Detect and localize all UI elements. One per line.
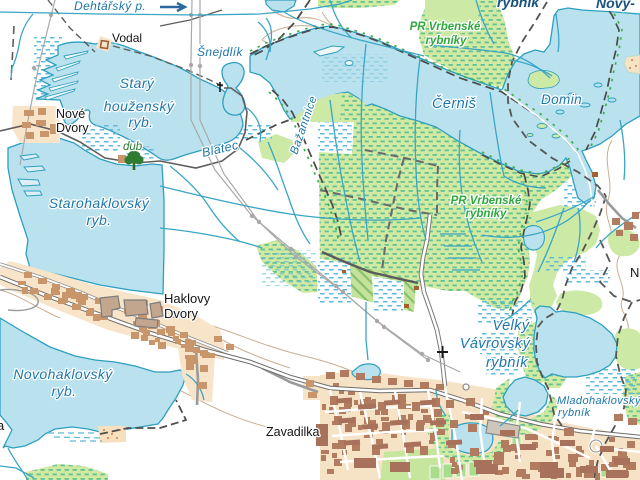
svg-text:rybník: rybník — [558, 407, 590, 419]
svg-text:dub: dub — [123, 141, 143, 153]
svg-text:Starý: Starý — [120, 75, 155, 91]
svg-text:Dehtářský p.: Dehtářský p. — [74, 0, 146, 13]
svg-text:rybník: rybník — [486, 355, 528, 371]
svg-text:rybníky: rybníky — [426, 35, 468, 47]
svg-text:PR Vrbenské: PR Vrbenské — [410, 21, 481, 33]
svg-text:Velký: Velký — [493, 318, 530, 334]
svg-text:rybník: rybník — [497, 0, 540, 10]
svg-text:N: N — [630, 265, 639, 280]
svg-text:ryb.: ryb. — [52, 383, 77, 399]
svg-text:Vodal: Vodal — [112, 31, 142, 45]
svg-text:Starohaklovský: Starohaklovský — [49, 195, 150, 211]
svg-text:rybníky: rybníky — [466, 208, 508, 220]
svg-text:Černiš: Černiš — [432, 95, 477, 112]
svg-text:Mladohaklovský: Mladohaklovský — [557, 395, 640, 407]
svg-text:Vávrovský: Vávrovský — [460, 336, 531, 352]
svg-text:Dvory: Dvory — [164, 306, 198, 321]
svg-text:Zavadilka: Zavadilka — [266, 425, 320, 439]
svg-text:PR Vrbenské: PR Vrbenské — [451, 195, 522, 207]
svg-text:Šnejdlík: Šnejdlík — [197, 44, 243, 59]
svg-text:Domin: Domin — [541, 92, 582, 107]
svg-text:ryb.: ryb. — [129, 114, 154, 130]
svg-text:Dvory: Dvory — [56, 121, 89, 135]
svg-text:Novohaklovský: Novohaklovský — [13, 366, 113, 382]
svg-text:houženský: houženský — [104, 98, 175, 114]
svg-text:Nový-: Nový- — [596, 0, 635, 11]
svg-text:ryb.: ryb. — [87, 212, 112, 228]
svg-text:Haklovy: Haklovy — [164, 291, 211, 306]
svg-text:Nové: Nové — [56, 107, 85, 121]
